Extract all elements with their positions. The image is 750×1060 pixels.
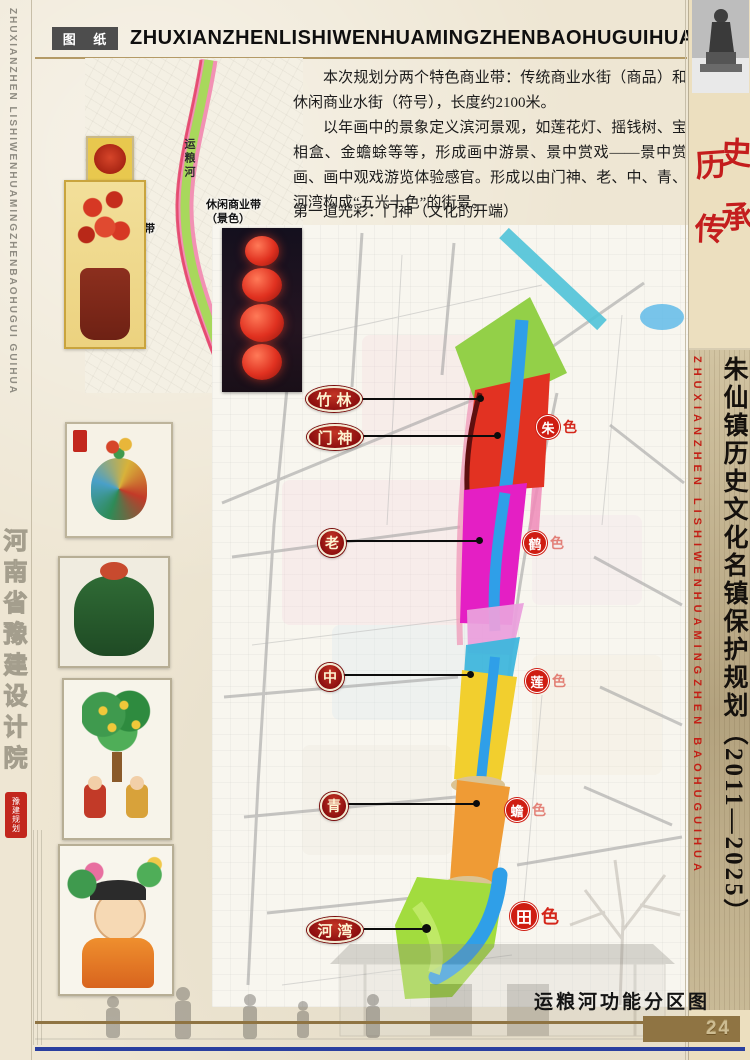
heritage-char-cheng: 承 (720, 191, 750, 238)
intro-paragraphs: 本次规划分两个特色商业带：传统商业水街（商品）和休闲商业水街（符号），长度约21… (293, 66, 687, 216)
plan-sheet: ZHUXIANZHEN LISHIWENHUAMINGZHENBAOHUGUI … (0, 0, 750, 1060)
tree-sketch (545, 830, 690, 1005)
heritage-calligraphy: 历 史 传 承 (689, 122, 750, 282)
color-badge-zhu: 朱 色 (536, 415, 577, 439)
leader-menshen (363, 435, 497, 437)
intro-paragraph-1: 本次规划分两个特色商业带：传统商业水街（商品）和休闲商业水街（符号），长度约21… (293, 66, 687, 116)
badge-char-he: 鹤 (523, 531, 547, 555)
leisure-band-text: 休闲商业带 (206, 199, 261, 211)
left-margin-pinyin: ZHUXIANZHEN LISHIWENHUAMINGZHENBAOHUGUI … (7, 8, 18, 528)
lantern-4 (242, 344, 282, 380)
jar-lid (100, 562, 128, 580)
zone-label-qing: 青 (320, 792, 348, 820)
color-badge-chan: 蟾 色 (505, 798, 546, 822)
page-number-bar: 24 (643, 1016, 740, 1042)
map-caption: 运粮河功能分区图 (478, 987, 710, 1014)
badge-char-chan: 蟾 (505, 798, 529, 822)
institute-seal: 豫建规划 (5, 792, 27, 838)
leader-dot-hewan (422, 924, 431, 933)
color-badge-lian: 莲 色 (525, 669, 566, 693)
color-badge-tian: 田 色 (510, 902, 559, 930)
heritage-char-shi: 史 (720, 127, 750, 174)
lantern-2 (242, 268, 282, 302)
sheet-title: ZHUXIANZHENLISHIWENHUAMINGZHENBAOHUGUIHU… (130, 27, 694, 50)
leader-hewan (364, 928, 426, 930)
plan-title-vertical: 朱仙镇历史文化名镇保护规划（2011—2025） (715, 356, 750, 1016)
badge-suffix-zhu: 色 (563, 417, 577, 437)
sheet-tag-box: 图 纸 (52, 27, 118, 50)
nianhua-print-moneytree (62, 678, 172, 840)
plan-pinyin-vertical: ZHUXIANZHEN LISHIWENHUAMINGZHEN BAOHUGUI… (691, 356, 703, 1016)
teapot-body (91, 458, 147, 520)
lotus-leaves (134, 856, 168, 890)
leader-qing (343, 803, 476, 805)
nianhua-print-jar (58, 556, 170, 668)
zone-label-hewan: 河湾 (307, 917, 363, 943)
footer-rule (35, 1021, 643, 1024)
jar-body (74, 576, 154, 656)
right-column: 历 史 传 承 朱仙镇历史文化名镇保护规划（2011—2025） ZHUXIAN… (688, 0, 750, 1060)
lion-medallion (94, 144, 126, 174)
badge-suffix-chan: 色 (532, 800, 546, 820)
people-silhouettes (106, 987, 380, 1039)
vase-body (80, 268, 130, 340)
badge-char-tian: 田 (510, 902, 538, 930)
river-name-label: 运粮河 (181, 138, 197, 180)
zone-label-menshen: 门神 (307, 424, 363, 450)
zone-label-lao: 老 (318, 529, 346, 557)
leader-dot-lao (476, 537, 483, 544)
figure-left-head (88, 776, 102, 790)
color-badge-he: 鹤 色 (523, 531, 564, 555)
badge-char-lian: 莲 (525, 669, 549, 693)
statue-image (692, 0, 749, 93)
leader-dot-zhong (467, 671, 474, 678)
nianhua-print-lion (86, 136, 134, 182)
tree-branches (570, 860, 680, 1005)
light-item-1: 第一道光彩：门神（文化的开端） (293, 200, 687, 226)
tree-trunk (112, 752, 122, 782)
lantern-1 (245, 236, 279, 266)
teapot-flowers (103, 434, 135, 460)
zone-label-zhong: 中 (316, 663, 344, 691)
bottom-blue-rule (35, 1047, 745, 1051)
leader-zhong (339, 674, 470, 676)
institute-name-vertical: 河南省豫建设计院 (2, 528, 30, 776)
badge-suffix-lian: 色 (552, 671, 566, 691)
leader-dot-menshen (494, 432, 501, 439)
leader-zhulin (362, 398, 480, 400)
page-number: 24 (706, 1018, 731, 1040)
tree-coins (88, 694, 148, 750)
lantern-3 (240, 304, 284, 342)
lotus-flowers (66, 860, 106, 900)
vase-flowers (74, 188, 136, 266)
teapot-seal (73, 430, 87, 452)
leader-dot-qing (473, 800, 480, 807)
nianhua-print-teapot (65, 422, 173, 538)
left-margin-divider (31, 0, 32, 1060)
zone-label-zhulin: 竹林 (306, 386, 362, 412)
leisure-band-label: 休闲商业带 （景色） (206, 198, 276, 226)
leader-lao (341, 540, 479, 542)
badge-suffix-tian: 色 (541, 903, 559, 929)
statue-photo (692, 0, 749, 93)
leisure-band-sub: （景色） (206, 213, 250, 225)
badge-suffix-he: 色 (550, 533, 564, 553)
nianhua-print-vase (64, 180, 146, 349)
leader-dot-zhulin (477, 395, 484, 402)
lantern-photo (222, 228, 302, 392)
badge-char-zhu: 朱 (536, 415, 560, 439)
figure-right-head (130, 776, 144, 790)
